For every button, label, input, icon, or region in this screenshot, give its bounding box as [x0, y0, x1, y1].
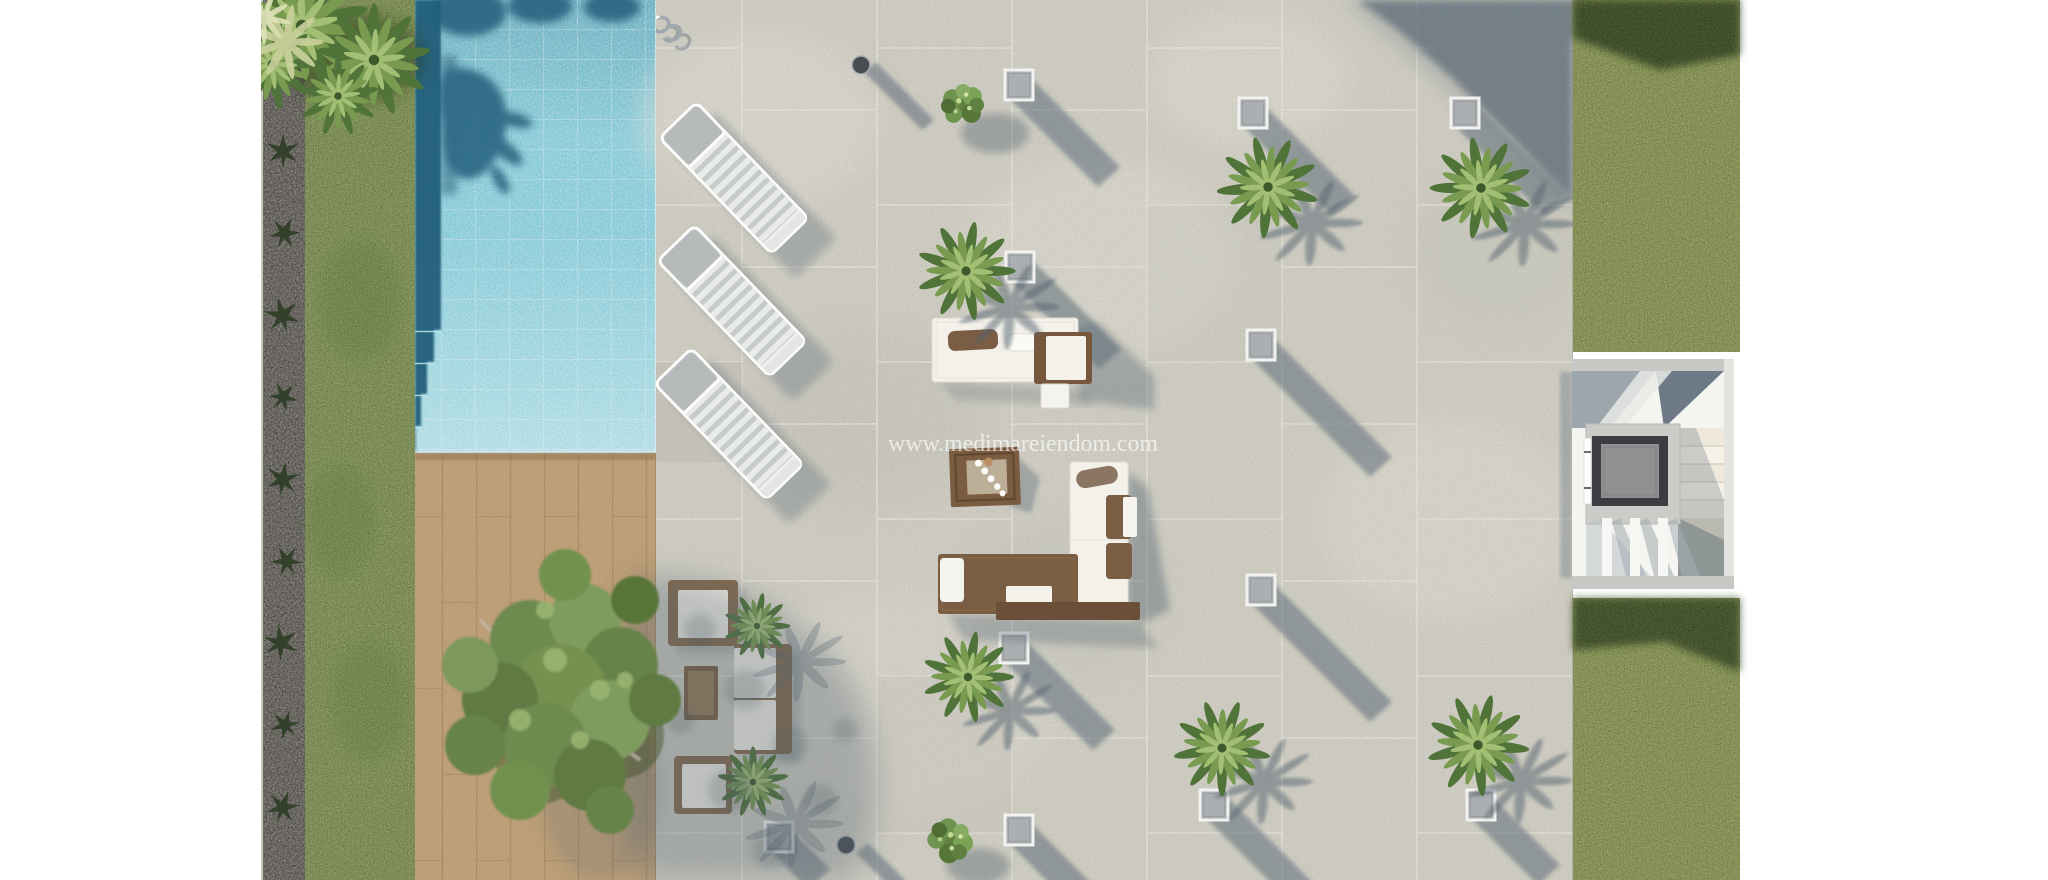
stairwell-wall-shadow	[1560, 372, 1573, 578]
stairwell-top-wall	[1572, 359, 1732, 371]
chaise-pillow	[940, 558, 964, 602]
watermark: www.medimareiendom.com	[888, 431, 1158, 457]
white-margin-right	[1740, 0, 2048, 880]
skylight	[1005, 815, 1033, 845]
elevator-cab	[1601, 444, 1659, 498]
skylight	[1247, 575, 1275, 605]
stairwell	[1572, 350, 1740, 600]
stairwell-bottom-wall	[1572, 576, 1734, 589]
floor-plan-render: www.medimareiendom.com	[0, 0, 2048, 880]
skylight	[1247, 330, 1275, 360]
elevator-door-track	[1584, 438, 1591, 504]
stairwell-right-wall	[1724, 359, 1734, 588]
skylight	[1451, 98, 1479, 128]
skylight	[1005, 70, 1033, 100]
swimming-pool	[415, 0, 656, 453]
garden-strip-left	[257, 0, 415, 880]
sofa-platform	[996, 602, 1140, 620]
white-margin-left	[0, 0, 261, 880]
skylight	[1239, 98, 1267, 128]
ottoman	[1041, 384, 1069, 408]
